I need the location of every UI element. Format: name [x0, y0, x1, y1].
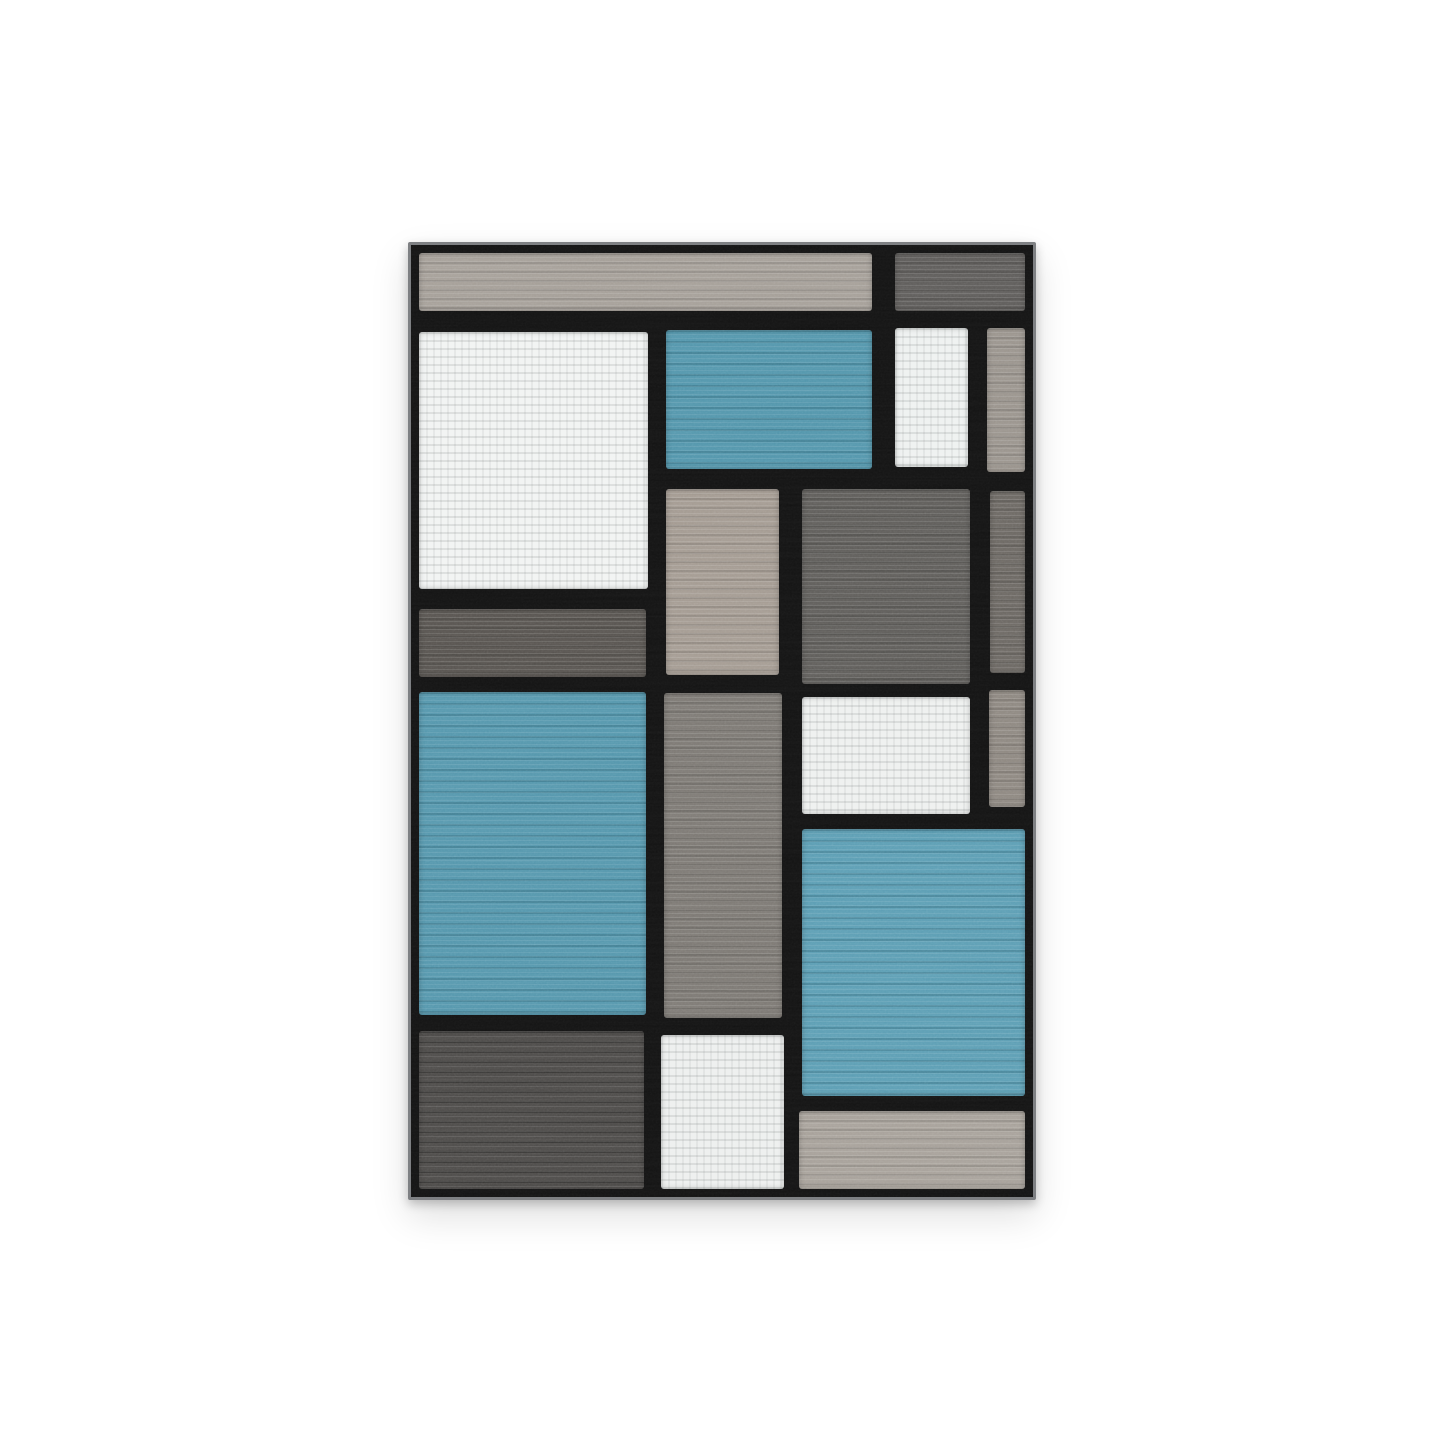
- rug-block-top-right-charcoal: [895, 253, 1025, 311]
- rug-block-left-blue-large: [419, 692, 646, 1015]
- rug-block-middle-right-darkgray: [802, 489, 969, 684]
- rug-block-upper-left-white: [419, 332, 648, 588]
- rug-block-left-dark-strip: [419, 609, 646, 678]
- area-rug: [408, 242, 1036, 1200]
- rug-block-right-blue-large: [802, 829, 1025, 1095]
- rug-block-upper-middle-blue: [666, 330, 872, 468]
- photo-background: [0, 0, 1445, 1445]
- rug-block-right-edge-darkgray: [990, 491, 1025, 673]
- rug-block-bottom-right-lightgray: [799, 1111, 1025, 1190]
- rug-block-top-strip-taupe: [419, 253, 872, 311]
- rug-block-upper-right-edge-gray: [987, 328, 1025, 472]
- rug-block-bottom-center-white: [661, 1035, 785, 1189]
- rug-block-upper-white-small: [895, 328, 967, 467]
- rug-block-center-right-white: [802, 697, 969, 814]
- rug-block-bottom-left-charcoal: [419, 1031, 644, 1189]
- rug-block-middle-tan: [666, 489, 780, 676]
- rug-block-center-gray-column: [664, 693, 783, 1018]
- rug-block-right-edge-midgray: [989, 690, 1025, 806]
